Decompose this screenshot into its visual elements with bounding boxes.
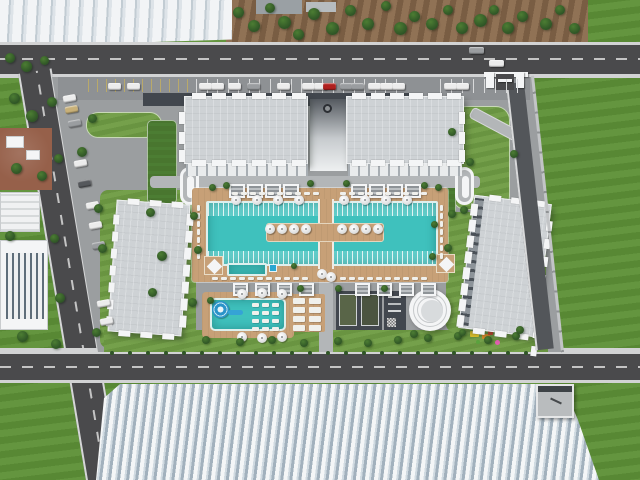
car xyxy=(67,119,81,128)
sun-lounger xyxy=(230,277,236,280)
parking-bay-line xyxy=(187,79,188,92)
tree-icon xyxy=(236,338,244,346)
sun-umbrella-icon xyxy=(360,195,370,205)
parking-bay-line xyxy=(106,79,107,92)
roof-balcony xyxy=(272,93,286,99)
tree-icon xyxy=(381,285,388,292)
sun-lounger xyxy=(272,311,279,315)
bush-icon xyxy=(434,351,438,355)
pergola xyxy=(421,283,436,296)
sun-lounger xyxy=(272,319,279,323)
tree-icon xyxy=(40,56,49,65)
tree-icon xyxy=(291,263,297,269)
roof-balcony xyxy=(212,93,226,99)
sun-lounger xyxy=(440,237,443,243)
sun-lounger xyxy=(421,192,427,195)
sun-lounger xyxy=(284,277,290,280)
parking-bay-line xyxy=(291,79,292,93)
sun-lounger xyxy=(262,303,269,307)
sun-lounger xyxy=(403,277,409,280)
sun-umbrella-icon xyxy=(402,195,412,205)
car xyxy=(247,83,260,90)
sun-lounger xyxy=(440,205,443,211)
roof-balcony xyxy=(390,93,404,99)
roof-balcony xyxy=(428,93,442,99)
tree-icon xyxy=(502,22,514,34)
sun-lounger xyxy=(367,192,373,195)
tree-icon xyxy=(426,18,438,30)
tree-icon xyxy=(223,182,230,189)
tree-icon xyxy=(207,297,214,304)
sun-lounger xyxy=(268,192,274,195)
sun-lounger xyxy=(358,277,364,280)
sun-lounger xyxy=(239,277,245,280)
sun-lounger xyxy=(272,327,279,331)
aerial-site-render xyxy=(0,0,640,480)
sun-umbrella-icon xyxy=(265,224,275,234)
tree-icon xyxy=(5,53,15,63)
sun-lounger xyxy=(277,192,283,195)
sun-umbrella-icon xyxy=(289,224,299,234)
tree-icon xyxy=(98,244,107,253)
sun-lounger xyxy=(376,192,382,195)
sun-lounger xyxy=(313,192,319,195)
car xyxy=(99,317,113,326)
bush-icon xyxy=(416,351,420,355)
tree-icon xyxy=(489,5,499,15)
parking-bay-line xyxy=(160,79,161,92)
sun-lounger xyxy=(394,192,400,195)
sun-umbrella-icon xyxy=(277,289,287,299)
decorations-layer xyxy=(0,0,640,480)
sun-lounger xyxy=(262,319,269,323)
sun-umbrella-icon xyxy=(277,332,287,342)
tree-icon xyxy=(443,5,453,15)
tree-icon xyxy=(265,3,275,13)
sun-umbrella-icon xyxy=(301,224,311,234)
tree-icon xyxy=(297,285,304,292)
parking-bay-line xyxy=(440,79,441,93)
tree-icon xyxy=(188,298,197,307)
sun-lounger xyxy=(412,192,418,195)
tree-icon xyxy=(459,329,466,336)
sun-lounger xyxy=(252,319,259,323)
tree-icon xyxy=(516,326,524,334)
bush-icon xyxy=(362,351,366,355)
sun-lounger xyxy=(302,277,308,280)
sun-umbrella-icon xyxy=(273,195,283,205)
bush-icon xyxy=(524,351,528,355)
sun-lounger xyxy=(340,192,346,195)
tree-icon xyxy=(51,339,61,349)
parking-bay-line xyxy=(178,79,179,92)
sun-lounger xyxy=(212,277,218,280)
parking-bay-line xyxy=(495,79,496,93)
roof-balcony xyxy=(252,93,266,99)
sun-lounger xyxy=(309,298,321,304)
sun-umbrella-icon xyxy=(349,224,359,234)
car xyxy=(228,83,241,90)
sun-lounger xyxy=(197,229,200,235)
bush-icon xyxy=(308,351,312,355)
sun-lounger xyxy=(293,325,305,331)
tree-icon xyxy=(248,20,260,32)
bush-icon xyxy=(452,351,456,355)
sun-lounger xyxy=(349,192,355,195)
sun-lounger xyxy=(221,277,227,280)
tree-icon xyxy=(209,184,216,191)
bush-icon xyxy=(398,351,402,355)
sun-lounger xyxy=(309,316,321,322)
sun-umbrella-icon xyxy=(257,333,267,343)
sun-lounger xyxy=(293,277,299,280)
car xyxy=(392,83,405,90)
sun-lounger xyxy=(250,192,256,195)
bush-icon xyxy=(506,351,510,355)
tree-icon xyxy=(55,293,65,303)
tree-icon xyxy=(540,18,552,30)
sun-lounger xyxy=(293,298,305,304)
bush-icon xyxy=(272,351,276,355)
parking-bay-line xyxy=(124,79,125,92)
bush-icon xyxy=(254,351,258,355)
roof-balcony xyxy=(447,93,461,99)
roof-balcony xyxy=(232,160,246,166)
tree-icon xyxy=(157,251,167,261)
tree-icon xyxy=(555,5,565,15)
sun-lounger xyxy=(376,277,382,280)
tree-icon xyxy=(146,208,155,217)
bush-icon xyxy=(218,351,222,355)
roof-balcony xyxy=(212,160,226,166)
tree-icon xyxy=(300,339,308,347)
sun-lounger xyxy=(304,192,310,195)
sun-lounger xyxy=(412,277,418,280)
pergola xyxy=(399,283,414,296)
roof-balcony xyxy=(390,160,404,166)
roof-balcony xyxy=(409,93,423,99)
roof-balcony xyxy=(428,160,442,166)
tree-icon xyxy=(233,7,244,18)
tree-icon xyxy=(94,204,103,213)
parking-bay-line xyxy=(196,79,197,93)
sun-umbrella-icon xyxy=(277,224,287,234)
sun-lounger xyxy=(232,192,238,195)
sun-lounger xyxy=(241,192,247,195)
sun-lounger xyxy=(266,277,272,280)
car xyxy=(469,47,484,54)
sun-umbrella-icon xyxy=(257,288,267,298)
tree-icon xyxy=(88,114,97,123)
parking-bay-line xyxy=(517,79,518,93)
car xyxy=(108,83,121,90)
sun-lounger xyxy=(262,311,269,315)
tree-icon xyxy=(9,93,20,104)
car xyxy=(277,83,290,90)
tree-icon xyxy=(92,328,101,337)
sun-umbrella-icon xyxy=(252,195,262,205)
sun-lounger xyxy=(403,192,409,195)
roof-balcony xyxy=(352,160,366,166)
bush-icon xyxy=(200,351,204,355)
bush-icon xyxy=(488,351,492,355)
roof-balcony xyxy=(292,93,306,99)
sun-umbrella-icon xyxy=(361,224,371,234)
sun-umbrella-icon xyxy=(339,195,349,205)
bush-icon xyxy=(182,351,186,355)
tree-icon xyxy=(466,158,474,166)
tree-icon xyxy=(37,171,47,181)
sun-lounger xyxy=(309,325,321,331)
tree-icon xyxy=(17,331,28,342)
tree-icon xyxy=(421,182,428,189)
roof-balcony xyxy=(409,160,423,166)
sun-lounger xyxy=(394,277,400,280)
sun-lounger xyxy=(295,192,301,195)
tree-icon xyxy=(293,29,304,40)
sun-lounger xyxy=(385,277,391,280)
car xyxy=(323,83,336,90)
tree-icon xyxy=(194,246,202,254)
sun-lounger xyxy=(197,237,200,243)
pergola xyxy=(355,283,370,296)
bush-icon xyxy=(326,351,330,355)
tree-icon xyxy=(410,330,418,338)
sun-lounger xyxy=(252,327,259,331)
tree-icon xyxy=(50,234,59,243)
parking-bay-line xyxy=(88,79,89,92)
sun-lounger xyxy=(262,327,269,331)
roof-balcony xyxy=(292,160,306,166)
parking-bay-line xyxy=(142,79,143,92)
sun-lounger xyxy=(309,307,321,313)
sun-lounger xyxy=(272,303,279,307)
sun-lounger xyxy=(440,245,443,251)
roof-balcony xyxy=(179,150,185,162)
bush-icon xyxy=(146,351,150,355)
roof-balcony xyxy=(272,160,286,166)
sun-umbrella-icon xyxy=(337,224,347,234)
tree-icon xyxy=(409,11,420,22)
tree-icon xyxy=(474,14,487,27)
tree-icon xyxy=(268,336,276,344)
sun-umbrella-icon xyxy=(381,195,391,205)
tree-icon xyxy=(381,1,391,11)
roof-balcony xyxy=(179,132,185,144)
tree-icon xyxy=(510,150,518,158)
roof-balcony xyxy=(459,150,465,162)
sun-umbrella-icon xyxy=(326,272,336,282)
parking-bay-line xyxy=(364,79,365,93)
sun-lounger xyxy=(440,221,443,227)
tree-icon xyxy=(429,253,436,260)
sun-lounger xyxy=(197,205,200,211)
sun-lounger xyxy=(275,277,281,280)
sun-lounger xyxy=(340,277,346,280)
roof-balcony xyxy=(371,93,385,99)
bush-icon xyxy=(128,351,132,355)
tree-icon xyxy=(77,147,87,157)
roof-balcony xyxy=(179,112,185,124)
roof-balcony xyxy=(371,160,385,166)
car xyxy=(456,83,469,90)
tree-icon xyxy=(444,244,452,252)
sun-lounger xyxy=(293,307,305,313)
roof-balcony xyxy=(459,112,465,124)
tree-icon xyxy=(345,5,356,16)
tree-icon xyxy=(148,288,157,297)
tree-icon xyxy=(308,8,320,20)
roof-balcony xyxy=(192,160,206,166)
sun-umbrella-icon xyxy=(294,195,304,205)
car xyxy=(127,83,140,90)
sun-lounger xyxy=(248,277,254,280)
tree-icon xyxy=(334,337,342,345)
car xyxy=(88,221,102,230)
tree-icon xyxy=(335,285,342,292)
tree-icon xyxy=(435,184,442,191)
bush-icon xyxy=(344,351,348,355)
tree-icon xyxy=(394,336,402,344)
tree-icon xyxy=(456,22,468,34)
sun-lounger xyxy=(440,213,443,219)
car xyxy=(351,83,364,90)
parking-bay-line xyxy=(151,79,152,92)
sun-umbrella-icon xyxy=(373,224,383,234)
tree-icon xyxy=(431,221,438,228)
sun-lounger xyxy=(259,192,265,195)
bush-icon xyxy=(290,351,294,355)
tree-icon xyxy=(569,23,580,34)
tree-icon xyxy=(448,210,456,218)
parking-bay-line xyxy=(270,79,271,93)
parking-bay-line xyxy=(97,79,98,92)
tree-icon xyxy=(460,206,468,214)
sun-lounger xyxy=(293,316,305,322)
tree-icon xyxy=(484,336,492,344)
car xyxy=(77,179,91,188)
sun-lounger xyxy=(358,192,364,195)
tree-icon xyxy=(21,61,32,72)
tree-icon xyxy=(326,22,339,35)
tree-icon xyxy=(190,212,198,220)
sun-lounger xyxy=(252,303,259,307)
parking-bay-line xyxy=(484,79,485,93)
sun-lounger xyxy=(257,277,263,280)
sun-umbrella-icon xyxy=(237,289,247,299)
car xyxy=(96,299,110,308)
tree-icon xyxy=(364,339,372,347)
tree-icon xyxy=(517,11,528,22)
car xyxy=(73,159,87,168)
sun-lounger xyxy=(367,277,373,280)
sun-lounger xyxy=(421,277,427,280)
tree-icon xyxy=(307,180,314,187)
tree-icon xyxy=(424,334,432,342)
roof-balcony xyxy=(252,160,266,166)
sun-lounger xyxy=(286,192,292,195)
bush-icon xyxy=(470,351,474,355)
sun-lounger xyxy=(349,277,355,280)
tree-icon xyxy=(47,97,57,107)
tree-icon xyxy=(278,16,291,29)
tree-icon xyxy=(394,22,407,35)
tree-icon xyxy=(343,180,350,187)
sun-lounger xyxy=(440,229,443,235)
tree-icon xyxy=(5,231,15,241)
tree-icon xyxy=(54,154,63,163)
tree-icon xyxy=(202,336,210,344)
roof-balcony xyxy=(232,93,246,99)
tree-icon xyxy=(26,110,38,122)
sun-lounger xyxy=(197,221,200,227)
tree-icon xyxy=(448,128,456,136)
parking-bay-line xyxy=(506,79,507,93)
sun-lounger xyxy=(252,311,259,315)
sun-umbrella-icon xyxy=(231,195,241,205)
roof-balcony xyxy=(459,132,465,144)
parking-bay-line xyxy=(169,79,170,92)
bush-icon xyxy=(236,351,240,355)
roof-balcony xyxy=(352,93,366,99)
tree-icon xyxy=(362,18,374,30)
car xyxy=(62,94,76,103)
sun-lounger xyxy=(440,253,443,259)
bush-icon xyxy=(164,351,168,355)
bush-icon xyxy=(110,351,114,355)
bush-icon xyxy=(380,351,384,355)
car xyxy=(64,105,78,114)
tree-icon xyxy=(11,163,22,174)
parking-bay-line xyxy=(473,79,474,93)
car xyxy=(489,60,504,67)
sun-lounger xyxy=(385,192,391,195)
car xyxy=(211,83,224,90)
roof-balcony xyxy=(192,93,206,99)
